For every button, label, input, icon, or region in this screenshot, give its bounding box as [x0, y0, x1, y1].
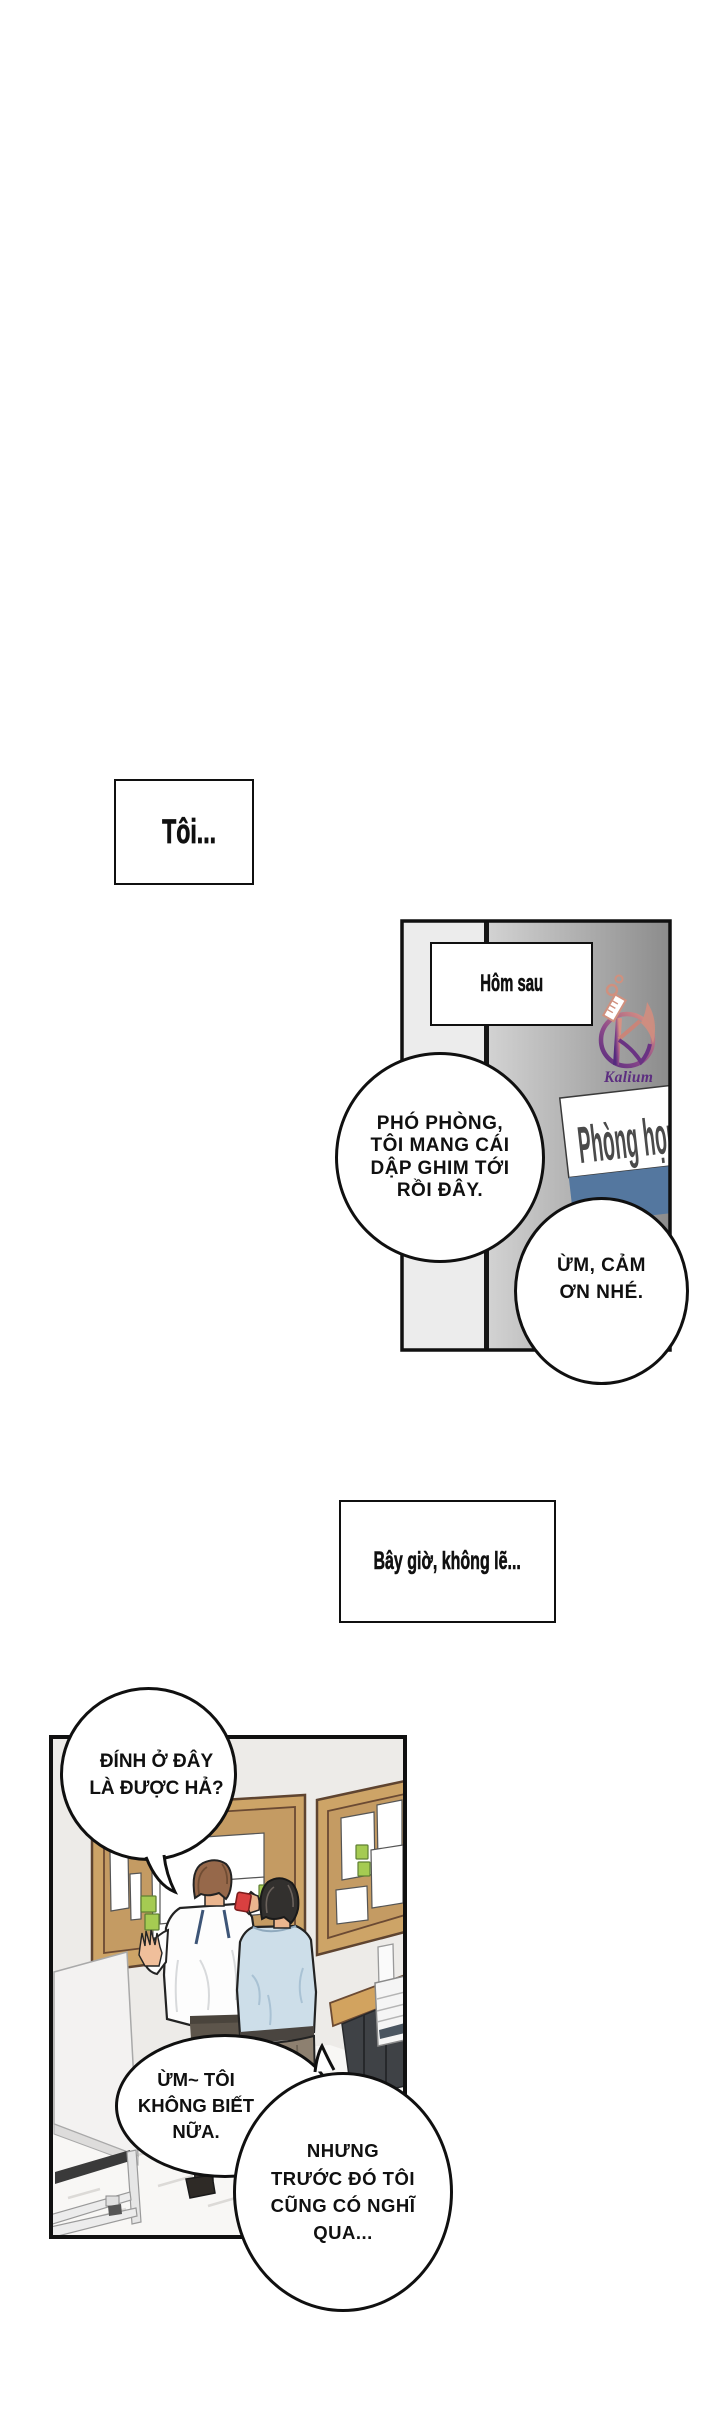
svg-text:Phòng họp: Phòng họp	[575, 1107, 676, 1175]
svg-text:Kalium: Kalium	[603, 1069, 653, 1086]
